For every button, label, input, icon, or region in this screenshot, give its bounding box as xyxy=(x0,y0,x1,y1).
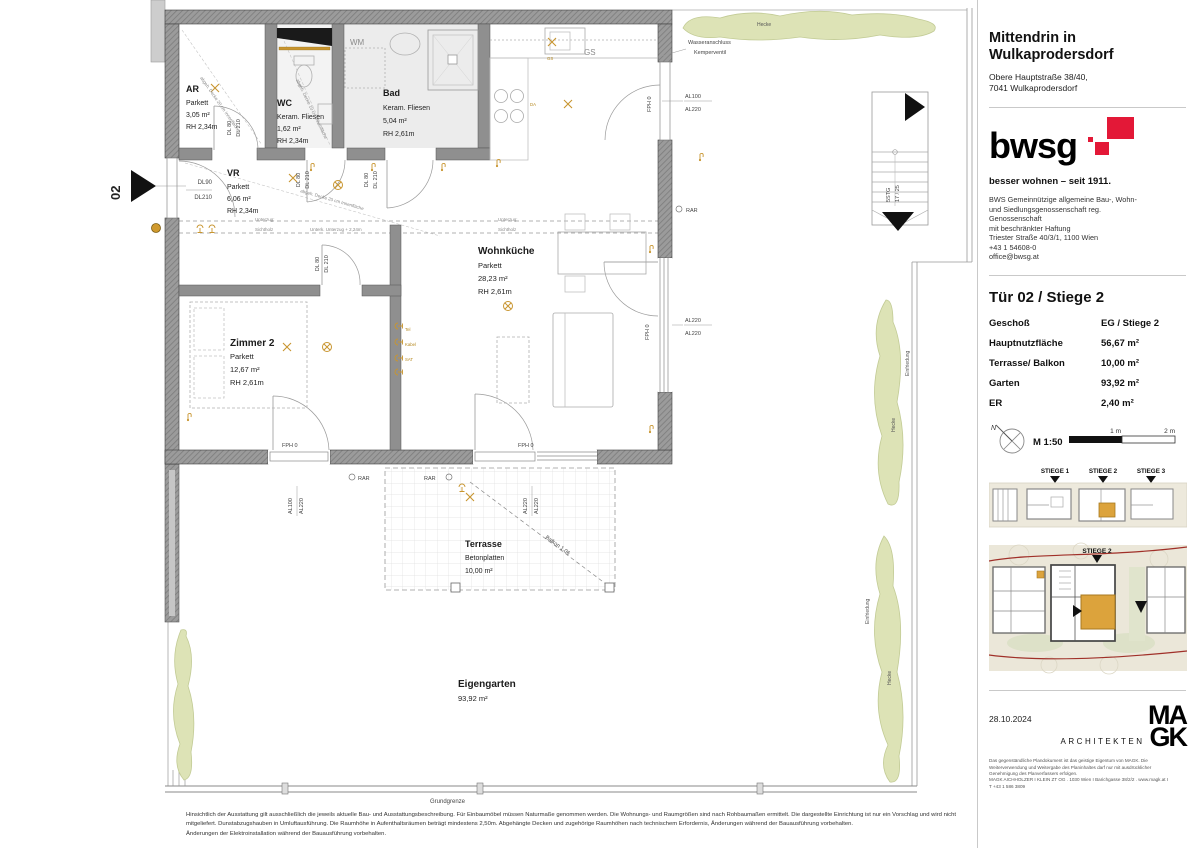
entry-door-dl90: DL90 xyxy=(198,180,213,186)
entrance-arrow-icon xyxy=(131,170,156,202)
room-vr-area: 6,06 m² xyxy=(227,196,251,203)
disclaimer-text: Hinsichtlich der Ausstattung gilt aussch… xyxy=(186,811,972,839)
stiege-3-label: STIEGE 3 xyxy=(1137,468,1166,475)
unit-title: Tür 02 / Stiege 2 xyxy=(989,289,1186,306)
scale-tick-2m: 2 m xyxy=(1164,428,1175,435)
neighbour-wall-top-left xyxy=(151,0,165,62)
company-details: BWS Gemeinnützige allgemeine Bau-, Wohn-… xyxy=(989,195,1186,261)
bwsg-tagline: besser wohnen – seit 1911. xyxy=(989,176,1186,187)
room-wohnkueche-area: 28,23 m² xyxy=(478,274,508,283)
bwsg-logo-square-medium xyxy=(1095,142,1109,155)
bwsg-logo: bwsg xyxy=(989,121,1186,173)
hedge-top xyxy=(683,11,935,40)
stiege-1-label: STIEGE 1 xyxy=(1041,468,1070,475)
wasseranschluss-2: Kemperventil xyxy=(694,50,726,56)
al220-south-wk-1: AL220 xyxy=(523,498,529,514)
table-row: ER 2,40 m² xyxy=(989,398,1186,409)
room-wc-area: 1,62 m² xyxy=(277,126,301,133)
al220-south-wk-2: AL220 xyxy=(534,498,540,514)
zimmer2-door-dl80: DL 80 xyxy=(315,257,321,271)
tel-label: Tel xyxy=(405,327,411,332)
scale-label: M 1:50 xyxy=(1033,437,1063,448)
floorplan-sheet: 02 AR Parkett 3,05 m² RH 2,34m WC Keram.… xyxy=(0,0,1200,848)
room-bad-name: Bad xyxy=(383,88,400,98)
stiege-3-arrow-icon xyxy=(1146,476,1156,483)
room-bad-area: 5,04 m² xyxy=(383,118,407,125)
room-terrasse-name: Terrasse xyxy=(465,539,502,549)
compass-and-scale: N M 1:50 1 m 2 m xyxy=(989,419,1187,459)
rar-label-3: RAR xyxy=(686,208,698,214)
stiege-overview-strip: STIEGE 1 STIEGE 2 STIEGE 3 xyxy=(989,465,1187,529)
entrance-marker: 02 xyxy=(108,170,156,202)
north-label: N xyxy=(991,425,997,432)
copyright-note: Das gegenständliche Plandokument ist das… xyxy=(989,758,1186,790)
ceiling-vr: abgeh. Decke 20 cm Innenfläche xyxy=(300,188,365,211)
table-row: Hauptnutzfläche 56,67 m² xyxy=(989,338,1186,349)
project-address: Obere Hauptstraße 38/40, 7041 Wulkaprode… xyxy=(989,72,1186,94)
room-ar-rh: RH 2,34m xyxy=(186,124,218,131)
table-row: Geschoß EG / Stiege 2 xyxy=(989,318,1186,329)
room-zimmer2-mat: Parkett xyxy=(230,352,255,361)
floor-plan-drawing: 02 AR Parkett 3,05 m² RH 2,34m WC Keram.… xyxy=(0,0,977,848)
fph0-wohnkueche: FPH 0 xyxy=(518,443,534,449)
table-row: Garten 93,92 m² xyxy=(989,378,1186,389)
al220-east-1: AL220 xyxy=(685,318,701,324)
unit-number: 02 xyxy=(108,186,123,200)
hedge-right-1 xyxy=(874,300,903,505)
wm-label: WM xyxy=(350,38,365,47)
room-ar-name: AR xyxy=(186,84,199,94)
room-zimmer2-area: 12,67 m² xyxy=(230,365,260,374)
room-vr-mat: Parkett xyxy=(227,184,249,191)
hecke-top: Hecke xyxy=(757,22,771,28)
al220-south-z2: AL220 xyxy=(299,498,305,514)
fph0-east-window: FPH 0 xyxy=(645,324,651,340)
gs-small-label: GS xyxy=(547,56,553,61)
room-vr-name: VR xyxy=(227,168,240,178)
room-wohnkueche-name: Wohnküche xyxy=(478,246,535,257)
room-wc-rh: RH 2,34m xyxy=(277,138,309,145)
room-bad-rh: RH 2,61m xyxy=(383,131,415,138)
wc-door-dl80: DL 80 xyxy=(296,173,302,187)
room-ar-mat: Parkett xyxy=(186,100,208,107)
room-bad-mat: Keram. Fliesen xyxy=(383,105,430,112)
bad-door-dl80: DL 80 xyxy=(364,173,370,187)
hedge-left xyxy=(173,630,193,780)
exterior-stairs xyxy=(872,92,928,231)
grundgrenze: Grundgrenze xyxy=(430,799,466,805)
entry-door-dl210: DL210 xyxy=(194,195,212,201)
room-wohnkueche-rh: RH 2,61m xyxy=(478,287,512,296)
magk-logo: MA ARCHITEKTEN GK xyxy=(1061,704,1186,748)
einfriedung-2: Einfriedung xyxy=(865,598,871,624)
room-zimmer2-rh: RH 2,61m xyxy=(230,378,264,387)
marker-dot xyxy=(152,224,161,233)
bwsg-logo-square-large xyxy=(1107,117,1134,139)
fph0-kitchen-door: FPH 0 xyxy=(647,96,653,112)
stairs-count: 5STG xyxy=(886,188,892,202)
room-ar-area: 3,05 m² xyxy=(186,112,210,119)
room-wc-name: WC xyxy=(277,98,292,108)
al220-east-2: AL220 xyxy=(685,331,701,337)
wasseranschluss-1: Wasseranschluss xyxy=(688,40,731,46)
room-zimmer2-name: Zimmer 2 xyxy=(230,338,275,349)
architekten-label: ARCHITEKTEN xyxy=(1061,739,1145,749)
rar-label-1: RAR xyxy=(358,476,370,482)
room-wohnkueche-mat: Parkett xyxy=(478,261,503,270)
room-terrasse-mat: Betonplatten xyxy=(465,555,504,562)
scale-bar-white xyxy=(1122,436,1175,443)
gs-label: GS xyxy=(584,48,596,57)
title-block-sidebar: Mittendrin in Wulkaprodersdorf Obere Hau… xyxy=(977,0,1200,848)
plan-labels: AR Parkett 3,05 m² RH 2,34m WC Keram. Fl… xyxy=(186,22,911,805)
unterzug-2b: Sichtholz xyxy=(498,227,517,232)
highlighted-unit-site xyxy=(1081,595,1115,629)
hecke-right-2: Hecke xyxy=(887,671,893,685)
room-terrasse-area: 10,00 m² xyxy=(465,568,493,575)
plan-date: 28.10.2024 xyxy=(989,714,1032,724)
einfriedung-1: Einfriedung xyxy=(905,350,911,376)
bwsg-wordmark: bwsg xyxy=(989,125,1077,166)
project-title: Mittendrin in Wulkaprodersdorf xyxy=(989,30,1186,63)
terrace xyxy=(385,468,615,592)
stairs-dims: 17 / 25 xyxy=(895,185,901,202)
unterzug-beam: Unterk. Unterzug + 2,24m xyxy=(310,227,362,232)
scale-tick-1m: 1 m xyxy=(1110,428,1121,435)
stiege-2-arrow-icon xyxy=(1098,476,1108,483)
unterzug-1a: Unterzug: xyxy=(255,217,275,222)
unterzug-1b: Sichtholz xyxy=(255,227,274,232)
al100-south-z2: AL100 xyxy=(288,498,294,514)
wc-door-dl210: DL 210 xyxy=(305,171,311,189)
hecke-right-1: Hecke xyxy=(891,418,897,432)
stiege-2-label: STIEGE 2 xyxy=(1089,468,1118,475)
table-row: Terrasse/ Balkon 10,00 m² xyxy=(989,358,1186,369)
unterzug-2a: Unterzug: xyxy=(498,217,518,222)
highlighted-unit xyxy=(1099,503,1115,517)
divider xyxy=(989,107,1186,108)
al220-top: AL220 xyxy=(685,107,701,113)
unit-data-table: Geschoß EG / Stiege 2 Hauptnutzfläche 56… xyxy=(989,318,1186,409)
hedge-right-2 xyxy=(874,536,903,782)
sat-label: SAT xyxy=(405,357,413,362)
divider xyxy=(989,690,1186,691)
kabel-label: Kabel xyxy=(405,342,416,347)
bad-door-dl210: DL 210 xyxy=(373,171,379,189)
room-vr-rh: RH 2,34m xyxy=(227,208,259,215)
fph0-zimmer2: FPH 0 xyxy=(282,443,298,449)
da-label: DA xyxy=(530,102,536,107)
zimmer2-door-dl210: DL 210 xyxy=(324,255,330,273)
bwsg-logo-square-small xyxy=(1088,137,1093,142)
al100-top: AL100 xyxy=(685,94,701,100)
room-eigengarten-area: 93,92 m² xyxy=(458,694,488,703)
site-plan-thumbnail: STIEGE 2 xyxy=(989,539,1187,677)
stiege-1-arrow-icon xyxy=(1050,476,1060,483)
ceiling-beam-lines xyxy=(179,221,658,233)
siteplan-stiege2-label: STIEGE 2 xyxy=(1082,548,1112,555)
room-eigengarten-name: Eigengarten xyxy=(458,679,516,690)
scale-bar-black xyxy=(1069,436,1122,443)
divider xyxy=(989,275,1186,276)
rar-label-2: RAR xyxy=(424,476,436,482)
